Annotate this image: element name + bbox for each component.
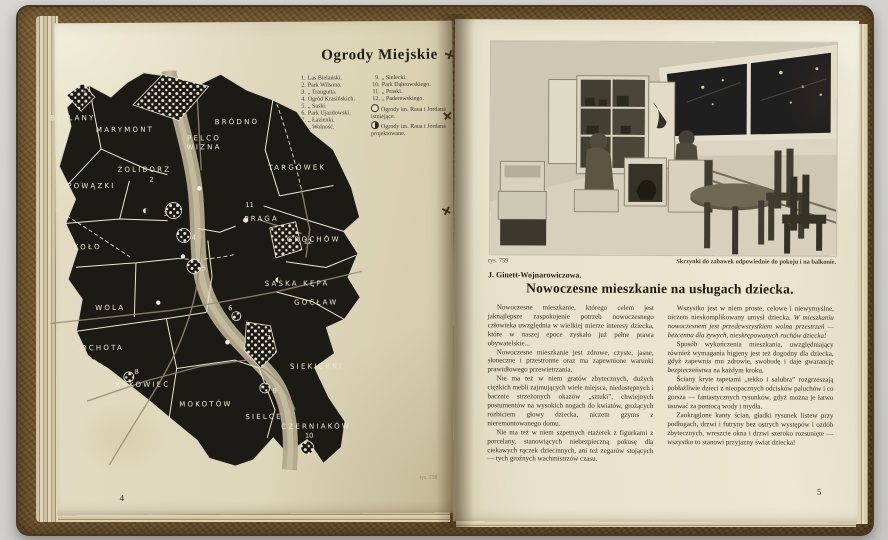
figure-reference: rys. 759 (488, 257, 508, 264)
photo-sepia-tint (490, 41, 837, 256)
paragraph: Ściany kryte tapetami „tekko i salubra” … (667, 375, 833, 411)
district-label: SIELCE (245, 413, 282, 421)
district-label: WOLA (95, 304, 125, 312)
photo-caption: Skrzynki do zabawek odpowiednie do pokoj… (676, 258, 836, 266)
park-number: 8 (135, 368, 139, 376)
park-number: 4 (192, 233, 196, 241)
district-label: MOKOTÓW (179, 399, 232, 408)
district-label: RAKOWIEC (115, 381, 170, 389)
legend-number: 9. (371, 75, 380, 82)
district-label: SASKA KĘPA (265, 279, 330, 287)
park-number: 5 (202, 264, 206, 272)
legend-label: Ogrody im. Raua i Jordana projektowane. (371, 124, 446, 137)
paragraph: Zaokrąglone kanty ścian, gładki rysunek … (667, 411, 833, 447)
legend-number: 11. (371, 89, 380, 96)
legend-label: Park Dąbrowskiego. (382, 82, 431, 88)
district-label: TARGÓWEK (267, 163, 326, 172)
legend-label: „ Praski. (382, 89, 403, 95)
article-body: Nowoczesne mieszkanie, którego celem jes… (487, 303, 836, 505)
paragraph: Nie ma też w niem szpetnych etażerek z f… (487, 428, 653, 464)
district-label: PELCO (187, 134, 221, 142)
photo-illustration (490, 41, 837, 256)
warsaw-city-gardens-map: BIELANY MARYMONT BRÓDNO PELCO WIZNA ŻOLI… (49, 69, 370, 477)
article-title: Nowoczesne mieszkanie na usługach dzieck… (484, 280, 836, 298)
district-label: PRAGA (244, 215, 279, 223)
article-column-left: Nowoczesne mieszkanie, którego celem jes… (487, 303, 654, 464)
district-label: KOŁO (74, 243, 102, 251)
article-author: J. Ginett-Wojnarowiczowa. (488, 270, 581, 279)
district-label: MARYMONT (96, 126, 154, 134)
figure-reference: rys. 758 (419, 475, 437, 481)
park-number: 1 (83, 89, 87, 97)
paragraph: Sposób wykończenia mieszkania, uwzględni… (668, 340, 834, 376)
legend-number: 12. (371, 96, 380, 103)
paragraph: Wszystko jest w niem proste, celowe i ni… (668, 304, 834, 340)
circle-half-filled-icon (371, 121, 379, 129)
book-gutter-shadow (436, 14, 474, 528)
district-label: GOCŁAW (294, 298, 338, 306)
legend-number: 10. (371, 82, 380, 89)
paragraph: Nowoczesne mieszkanie, którego celem jes… (488, 303, 654, 348)
legend-label: „ Sielecki. (382, 75, 407, 81)
district-label: GROCHÓW (287, 234, 341, 243)
district-label: BIELANY (50, 114, 95, 122)
park-number: 6 (228, 304, 232, 312)
district-label: POWĄZKI (67, 182, 115, 190)
park-number: 2 (149, 176, 153, 184)
photo-caption-line: rys. 759 Skrzynki do zabawek odpowiednie… (488, 257, 836, 259)
park-number: 11 (245, 201, 253, 209)
paragraph: Nie ma też w niem gratów zbytecznych, du… (487, 375, 653, 429)
paragraph: Nowoczesne mieszkanie jest zdrowe, czyst… (488, 348, 654, 375)
legend-label: „ Paderewskiego. (382, 96, 424, 102)
left-page: Ogrody Miejskie 1.Las Bielański. 2.Park … (54, 21, 455, 516)
page-number-left: 4 (120, 493, 125, 503)
district-label: CZERNIAKÓW (281, 421, 351, 430)
district-label: WIZNA (187, 143, 222, 151)
legend-label: Ogrody im. Raua i Jordana istniejące. (371, 107, 446, 120)
district-label: ŻOLIBORZ (117, 165, 171, 174)
photo-childrens-room (490, 41, 837, 256)
photo-background: Ogrody Miejskie 1.Las Bielański. 2.Park … (0, 0, 888, 540)
park-number: 10 (305, 432, 313, 440)
district-label: SIEKIERKI (290, 362, 343, 370)
right-page: rys. 759 Skrzynki do zabawek odpowiednie… (453, 19, 859, 523)
park-number: 3 (164, 210, 168, 218)
article-column-right: Wszystko jest w niem proste, celowe i ni… (667, 304, 834, 447)
page-number-right: 5 (817, 487, 822, 497)
park-number: 9 (273, 387, 277, 395)
park-number: 7 (266, 334, 270, 342)
district-label: OCHOTA (81, 344, 124, 352)
district-label: BRÓDNO (215, 117, 260, 126)
circle-outline-icon (371, 104, 379, 112)
park-number: 12 (304, 238, 312, 246)
